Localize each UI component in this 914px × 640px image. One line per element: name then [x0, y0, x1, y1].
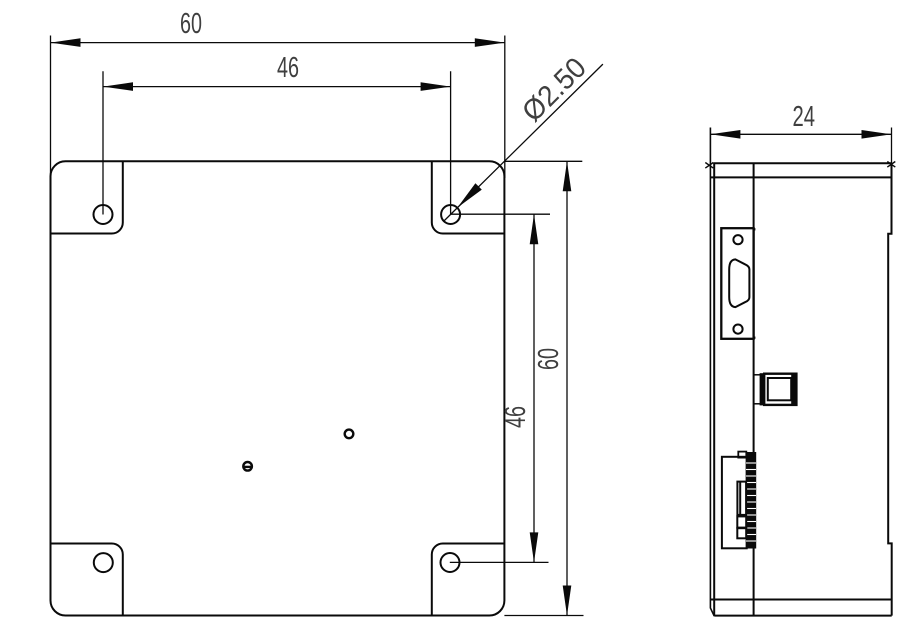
- svg-text:46: 46: [500, 406, 532, 428]
- svg-text:24: 24: [793, 101, 816, 133]
- svg-text:60: 60: [533, 348, 565, 370]
- svg-text:46: 46: [277, 52, 299, 84]
- svg-text:60: 60: [180, 8, 202, 40]
